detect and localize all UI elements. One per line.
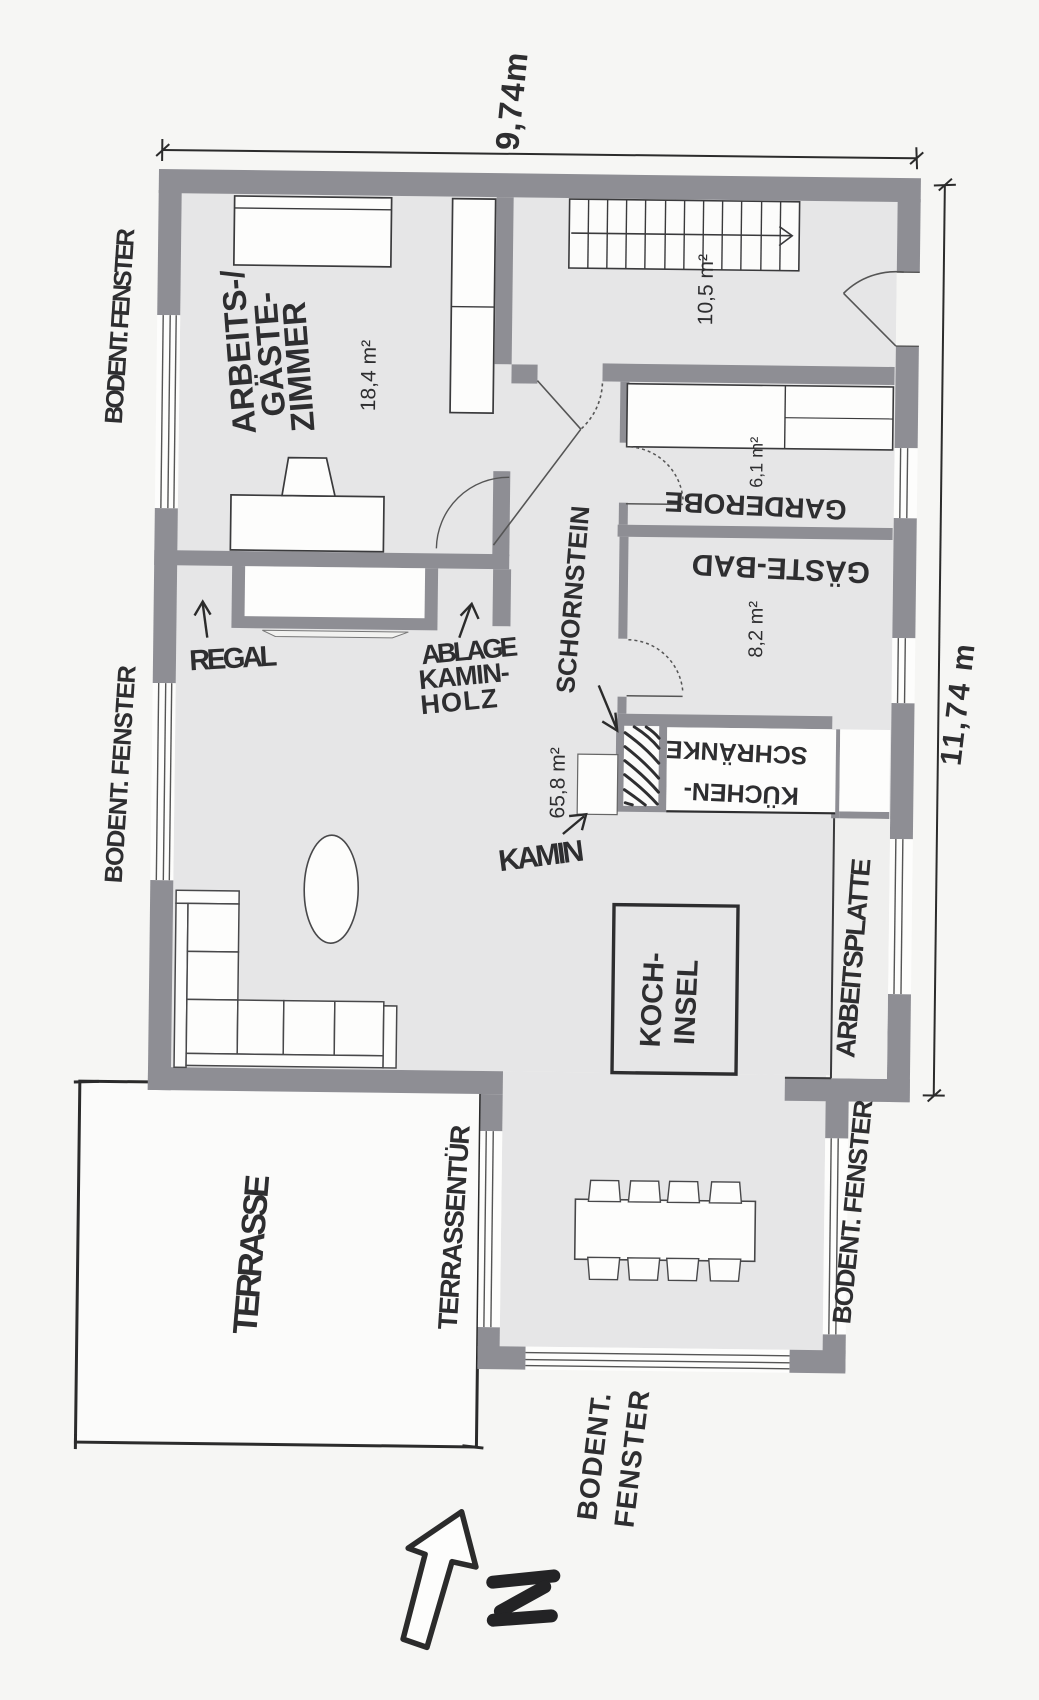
svg-text:FENSTER: FENSTER [608, 1389, 655, 1530]
svg-text:18,4 m²: 18,4 m² [357, 340, 381, 411]
svg-text:10,5 m²: 10,5 m² [694, 254, 718, 325]
svg-text:INSEL: INSEL [669, 959, 705, 1046]
svg-text:BODENT. FENSTER: BODENT. FENSTER [100, 664, 142, 883]
svg-text:KÜCHEN-: KÜCHEN- [683, 776, 800, 810]
svg-text:8,2 m²: 8,2 m² [745, 601, 768, 658]
svg-text:BODENT.: BODENT. [571, 1391, 617, 1522]
svg-text:KOCH-: KOCH- [635, 952, 671, 1048]
svg-text:6,1 m²: 6,1 m² [746, 437, 767, 488]
svg-text:BODENT. FENSTER: BODENT. FENSTER [100, 227, 141, 424]
svg-text:9,74m: 9,74m [488, 51, 535, 152]
svg-text:65,8 m²: 65,8 m² [546, 747, 570, 818]
svg-text:REGAL: REGAL [188, 640, 278, 677]
svg-text:11,74 m: 11,74 m [935, 642, 982, 767]
